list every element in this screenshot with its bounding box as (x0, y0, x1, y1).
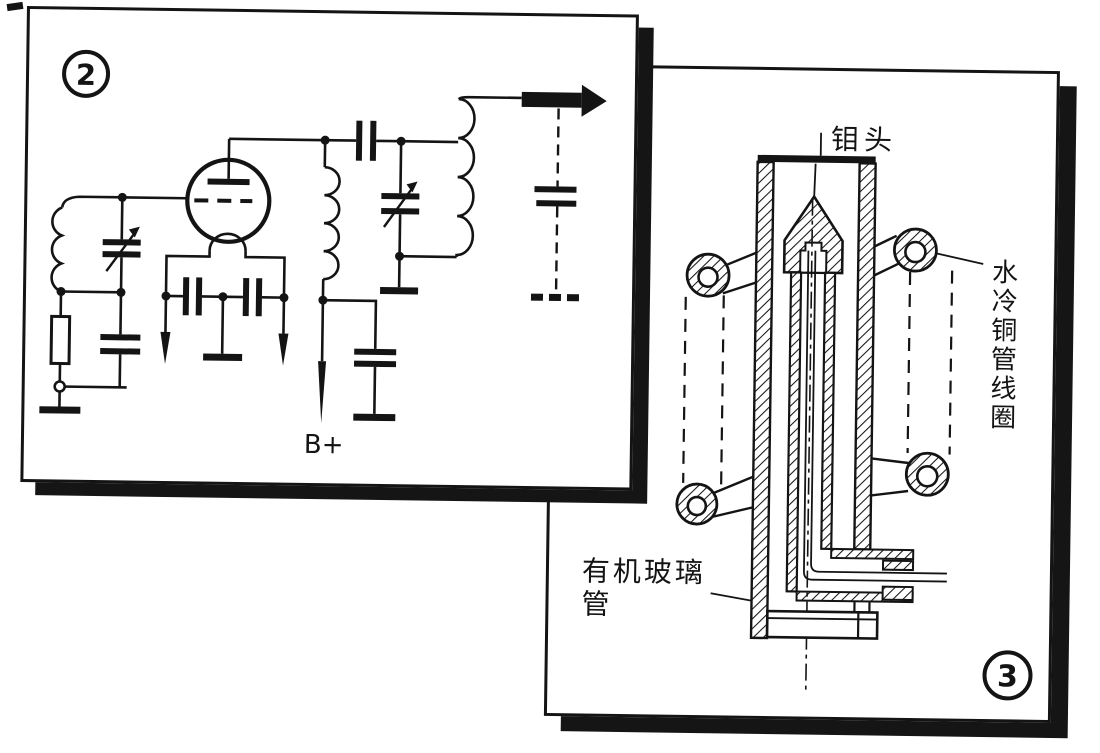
tube-label-group: 有机玻璃 管 (581, 554, 753, 622)
cathode-return-wire (60, 386, 127, 387)
molybdenum-tip (784, 196, 843, 273)
scan-speck (7, 2, 24, 11)
output-wire (459, 97, 522, 100)
coil-label-group: 水 冷 铜 管 线 圈 (934, 253, 1018, 433)
tube-plate (208, 179, 250, 186)
filament-supply-arrow-left (160, 332, 170, 364)
tank-variable-capacitor (381, 141, 421, 257)
coil-turn-dashed-lines (683, 267, 952, 489)
coil-label-char-4: 管 (991, 345, 1017, 375)
b-plus-arrow (317, 361, 326, 423)
grid-wire (122, 197, 187, 198)
tank-coil (457, 99, 475, 257)
tube-label-line1: 有机玻璃 (582, 554, 706, 589)
pipe-fitting-lower (883, 587, 913, 600)
ground-symbol-antenna (531, 297, 581, 298)
coil-turn-upper-left (687, 254, 730, 297)
figure-2-badge: 2 (64, 52, 109, 97)
figure-2-badge-number: 2 (76, 58, 97, 92)
filament-supply-arrow-right (278, 334, 288, 366)
base-plug (767, 611, 877, 639)
inner-wall-right (821, 273, 835, 549)
terminal-circle (55, 381, 65, 391)
outer-wall-left (751, 162, 774, 638)
inner-wall-left (787, 272, 801, 591)
coil-turn-upper-right (894, 229, 937, 272)
coil-label-char-2: 冷 (992, 287, 1018, 317)
tube-grid (194, 200, 252, 201)
coil-label-char-5: 线 (990, 374, 1016, 404)
duct-upper-wall (831, 549, 913, 559)
b-plus-label: B+ (304, 430, 344, 461)
tube-leader-line (711, 593, 753, 601)
b-plus-lead (322, 300, 323, 361)
coil-label-char-6: 圈 (990, 403, 1016, 433)
panel-figure-2: 2 (20, 6, 639, 490)
tank-tap-wire (401, 141, 458, 142)
tube-label-line2: 管 (581, 587, 609, 620)
coil-label-char-3: 铜 (991, 316, 1017, 346)
output-arrow-icon (522, 84, 607, 117)
grid-bottom-wire (61, 292, 121, 293)
ground-symbol-center (203, 353, 242, 361)
figure-3-badge-number: 3 (997, 659, 1018, 694)
ground-symbol-tank (380, 256, 419, 295)
grid-variable-capacitor (102, 197, 141, 293)
antenna-equivalent-branch (531, 108, 584, 298)
triode-tube (187, 138, 271, 251)
coil-turn-lower-right (906, 453, 949, 496)
plate-choke-coil (323, 140, 340, 300)
filament-network (160, 250, 290, 366)
figure-3-badge: 3 (984, 652, 1031, 699)
outer-wall-right (854, 163, 875, 549)
tank-bottom-wire (400, 256, 457, 257)
oscillator-circuit-diagram: 2 (23, 9, 636, 487)
tip-label: 钼头 (831, 123, 897, 157)
coupling-capacitor (325, 120, 402, 161)
coil-leader-line (936, 253, 983, 264)
plate-wire (229, 139, 325, 140)
coil-label-char-1: 水 (992, 258, 1018, 288)
grid-capacitor (100, 292, 141, 388)
ground-symbol-left (39, 391, 80, 414)
pipe-fitting-upper (883, 561, 913, 570)
coil-turn-lower-left (677, 484, 718, 525)
bplus-bypass-capacitor (321, 300, 397, 421)
grid-resistor (51, 291, 70, 386)
